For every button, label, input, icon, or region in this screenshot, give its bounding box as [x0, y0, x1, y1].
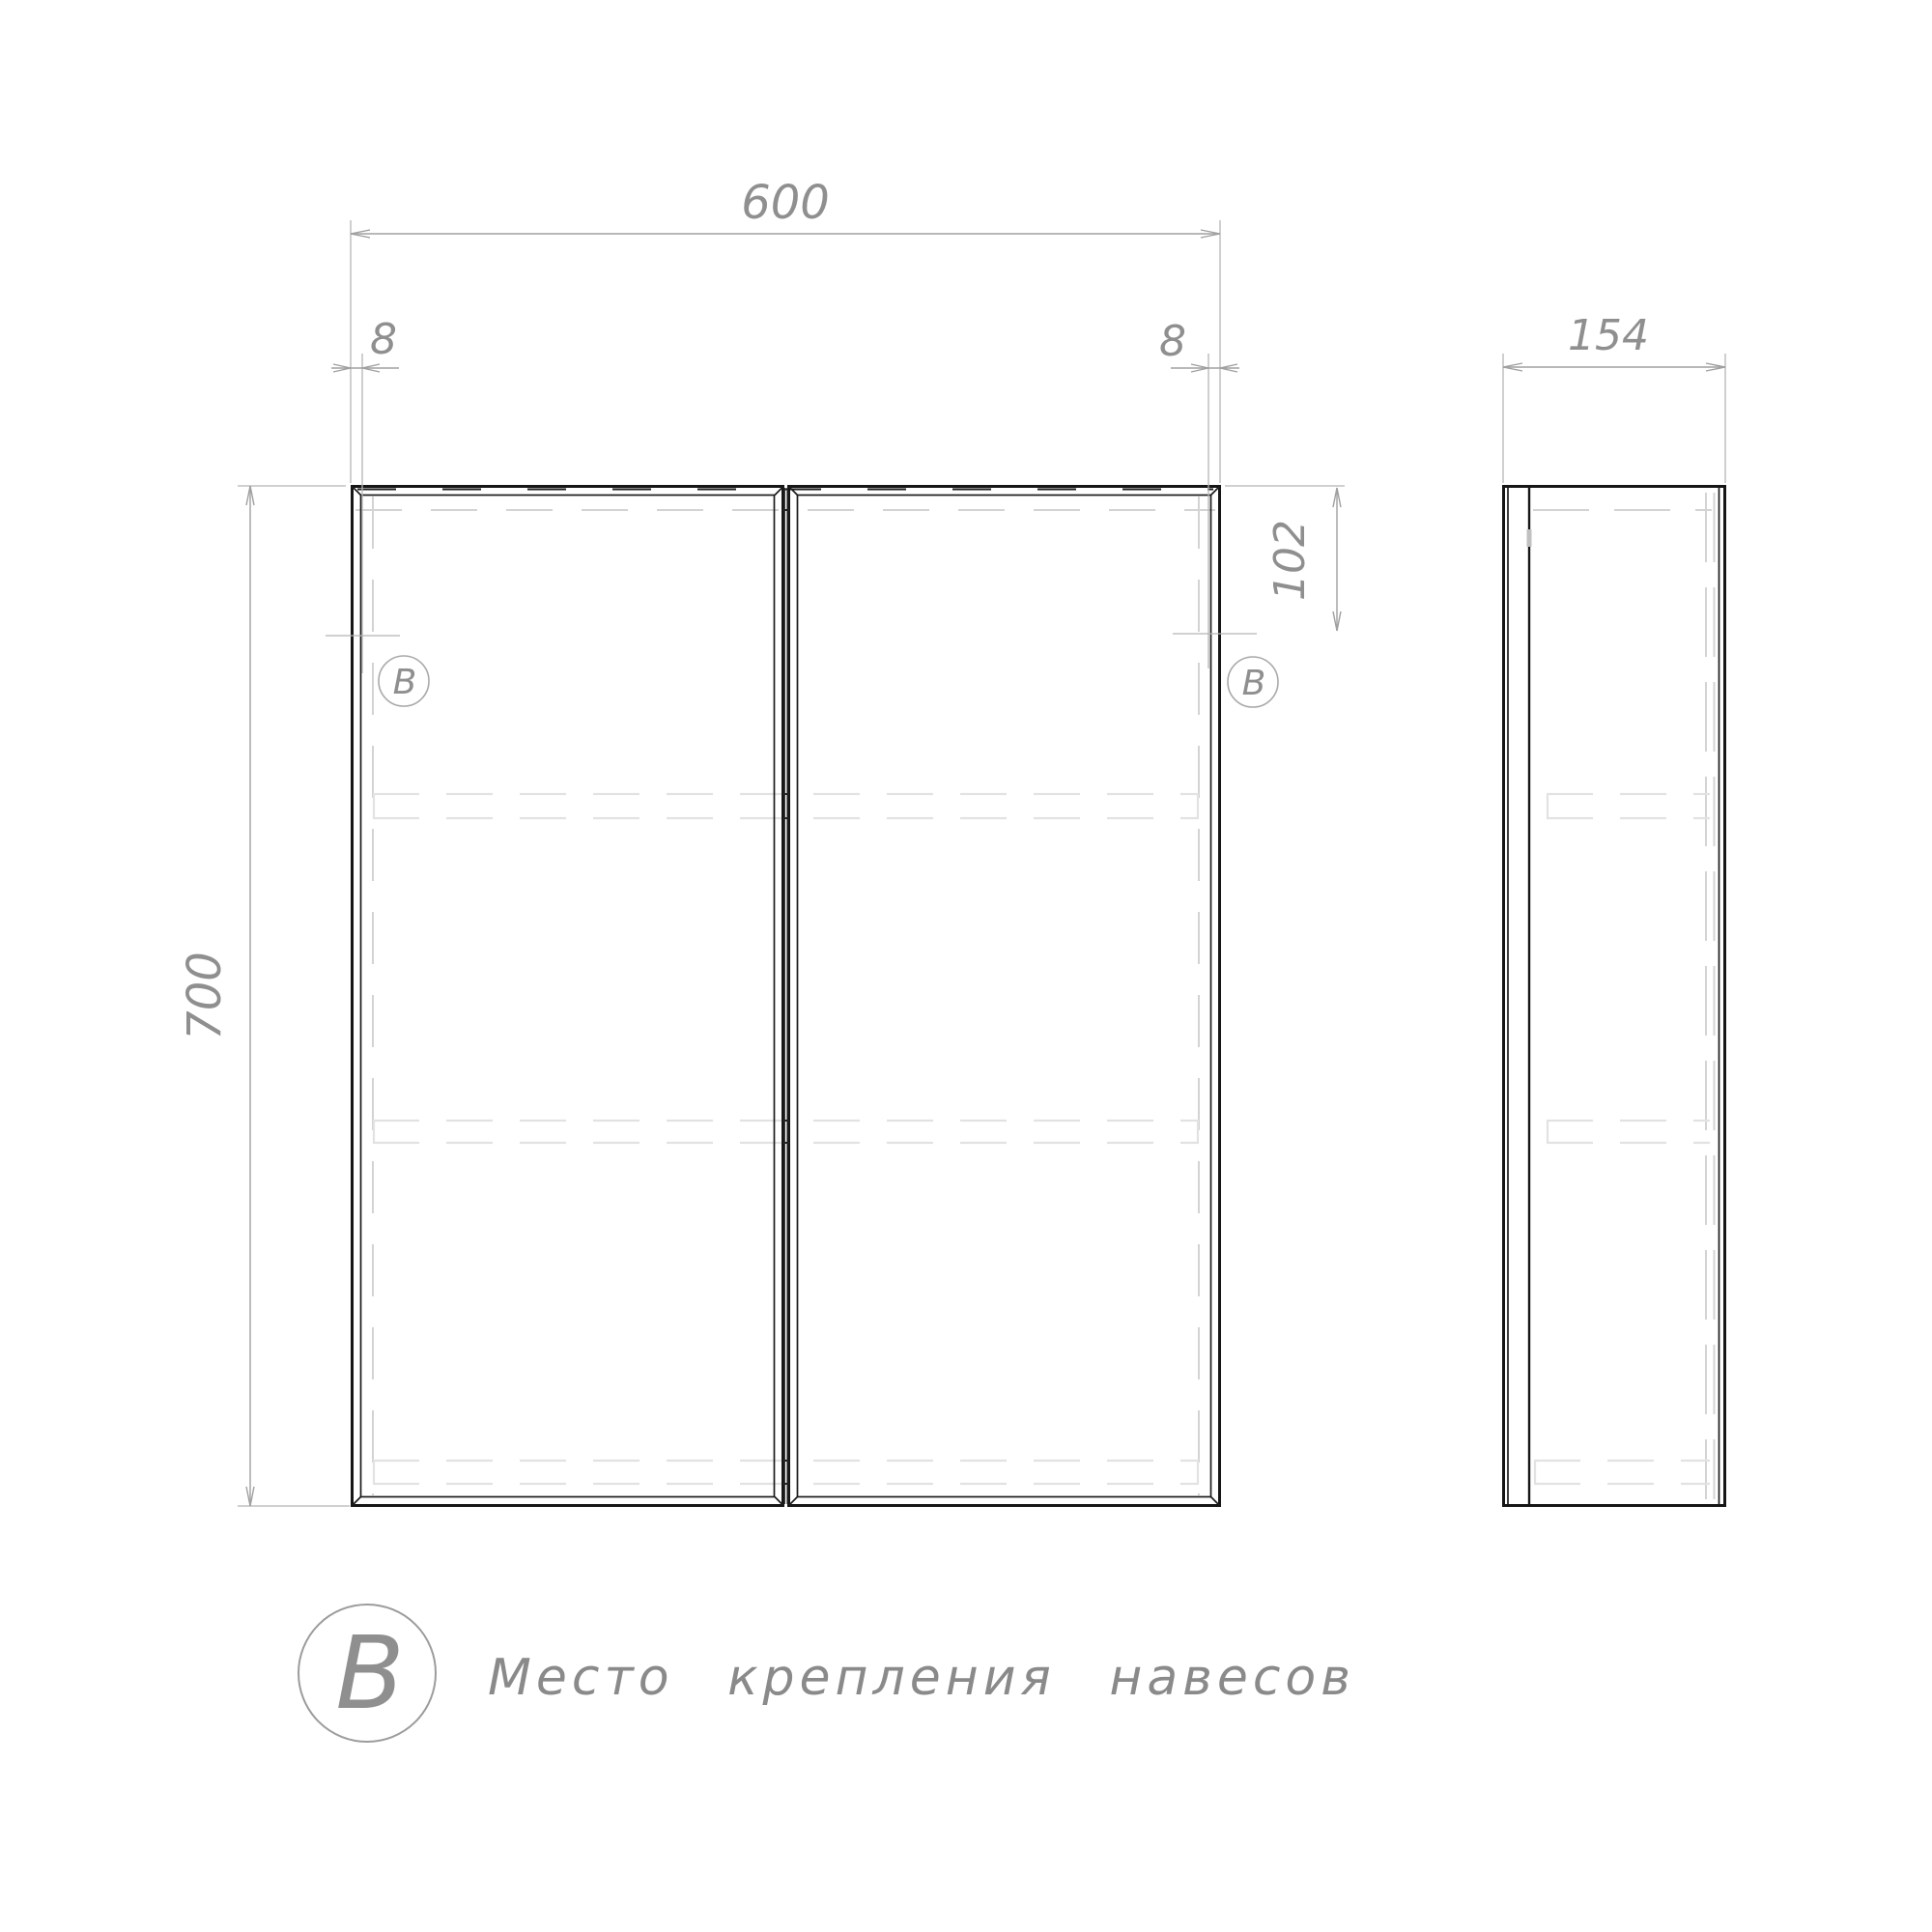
technical-drawing-canvas: B B — [0, 0, 1932, 1932]
door-right-outline — [789, 487, 1220, 1506]
dimension-depth: 154 — [1503, 311, 1725, 483]
dim154-label: 154 — [1568, 311, 1649, 360]
drawing-page: B B — [0, 0, 1932, 1932]
side-shelves — [1534, 794, 1710, 1484]
hinge-marker-right: B — [1173, 354, 1278, 707]
door-left-inner-edge — [361, 496, 775, 1497]
side-hinge-plate-icon — [1527, 529, 1532, 547]
door-right-inner-edge — [798, 496, 1211, 1497]
side-view — [1504, 487, 1725, 1506]
dim700-label: 700 — [178, 952, 232, 1040]
legend: B Место крепления навесов — [298, 1605, 1355, 1742]
door-left-outline — [353, 487, 783, 1506]
door-left-bevels — [353, 487, 784, 1506]
door-right-bevels — [789, 487, 1220, 1506]
hinge-right-b-label: B — [1242, 664, 1266, 703]
dim102-label: 102 — [1265, 520, 1315, 601]
legend-description: Место крепления навесов — [488, 1649, 1355, 1707]
dimension-hinge-top-offset: 102 — [1225, 486, 1345, 631]
legend-b-symbol: B — [335, 1614, 404, 1732]
hinge-marker-left: B — [326, 354, 429, 706]
hinge-left-b-label: B — [393, 663, 417, 702]
dimension-height: 700 — [178, 486, 350, 1506]
front-hidden-lines — [355, 497, 1215, 1495]
front-shelves — [373, 794, 1199, 1484]
door-left — [353, 487, 784, 1506]
dimension-hinge-inset-left: 8 — [331, 315, 399, 372]
dimension-width: 600 — [351, 176, 1220, 483]
dim8L-label: 8 — [370, 315, 397, 364]
side-view-outline — [1504, 487, 1725, 1506]
dimension-hinge-inset-right: 8 — [1159, 317, 1239, 372]
dim600-label: 600 — [741, 176, 830, 230]
door-right — [789, 487, 1220, 1506]
dim8R-label: 8 — [1159, 317, 1186, 366]
front-view: B B — [326, 354, 1278, 1506]
